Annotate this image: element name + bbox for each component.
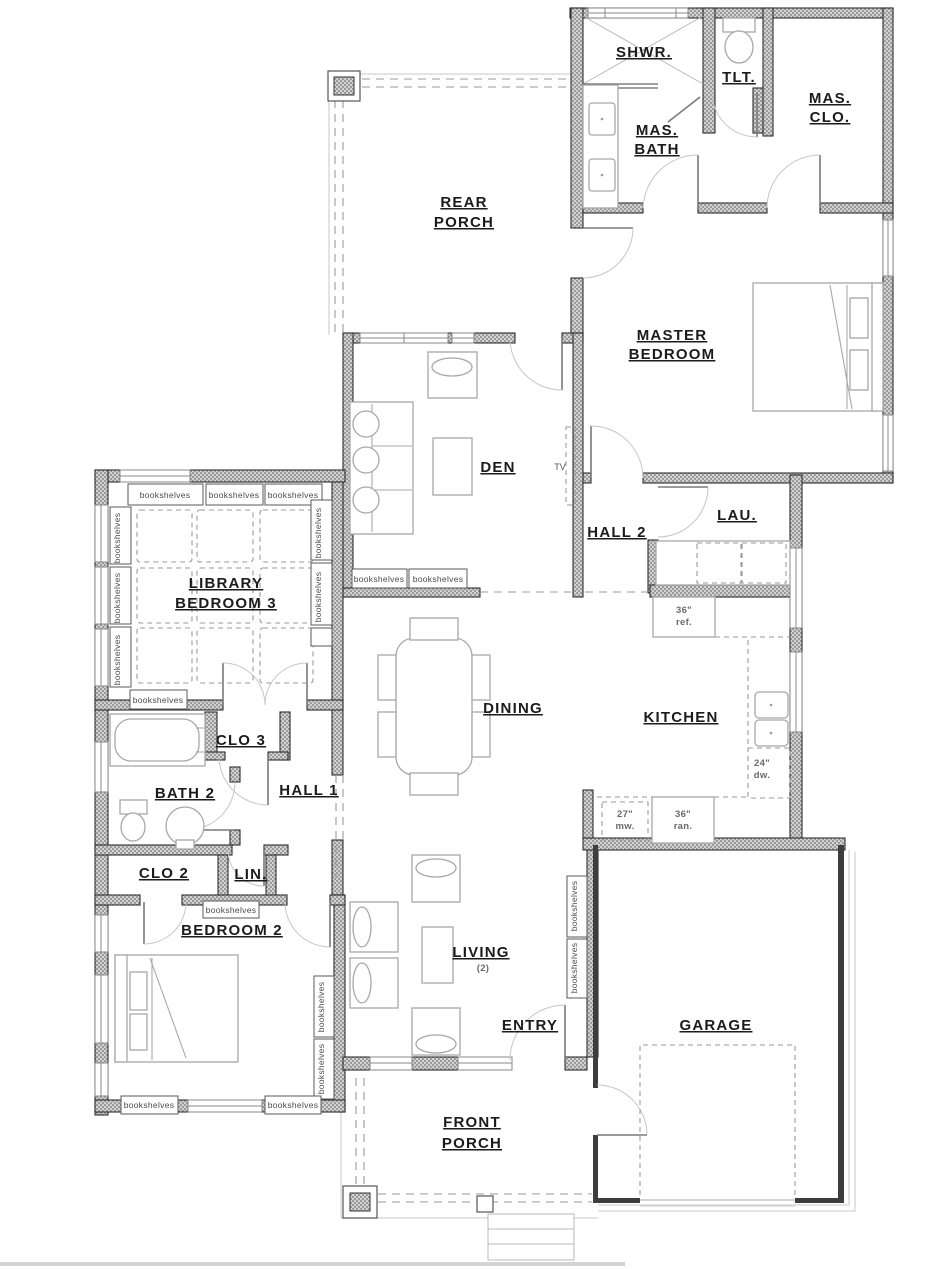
- bookshelves-label: bookshelves: [413, 574, 464, 584]
- label-dining: DINING: [483, 700, 543, 717]
- dining-table-icon: [396, 638, 472, 775]
- label-mw: mw.: [615, 821, 634, 832]
- toilet-tank-icon: [120, 800, 147, 814]
- label-bath-2: BATH 2: [155, 785, 215, 802]
- label-rear-porch-1: REAR: [440, 194, 487, 211]
- bookshelves-label: bookshelves: [268, 490, 319, 500]
- floor-plan-sheet: SHWR. TLT. MAS. CLO. MAS. BATH REAR PORC…: [0, 0, 950, 1269]
- toilet-icon: [725, 31, 753, 63]
- rear-porch-column: [328, 71, 360, 101]
- label-dw: dw.: [754, 770, 770, 781]
- label-front-porch-1: FRONT: [443, 1114, 501, 1131]
- toilet-room-fixtures: [723, 18, 755, 63]
- dining-furniture: [378, 618, 490, 795]
- label-living: LIVING: [452, 944, 509, 961]
- front-steps: [488, 1214, 574, 1260]
- label-mas-clo-1: MAS.: [809, 90, 851, 107]
- bookshelves-label: bookshelves: [316, 982, 326, 1033]
- label-entry: ENTRY: [502, 1017, 558, 1034]
- label-mas-bath-2: BATH: [634, 141, 679, 158]
- porch-post: [477, 1196, 493, 1212]
- label-ref: ref.: [676, 617, 692, 628]
- laundry-appliances: [656, 541, 790, 585]
- label-living-count: (2): [477, 963, 490, 974]
- headboard: [115, 955, 127, 1062]
- bookshelves-label: bookshelves: [569, 943, 579, 994]
- label-rear-porch-2: PORCH: [434, 214, 494, 231]
- bookshelves-label: bookshelves: [206, 905, 257, 915]
- laundry-counter: [656, 541, 790, 585]
- bath2-fixtures: [110, 714, 205, 849]
- label-mas-clo-2: CLO.: [810, 109, 851, 126]
- chair-icon: [472, 655, 490, 700]
- headboard: [872, 283, 883, 411]
- chair-icon: [410, 618, 458, 640]
- label-lau: LAU.: [717, 507, 757, 524]
- garage-car-space: [640, 1045, 795, 1195]
- label-front-porch-2: PORCH: [442, 1135, 502, 1152]
- label-ran-size: 36": [675, 809, 691, 820]
- range-icon: [652, 797, 714, 843]
- pillow-icon: [850, 350, 868, 390]
- label-kitchen: KITCHEN: [643, 709, 718, 726]
- label-hall-1: HALL 1: [279, 782, 338, 799]
- chair-icon: [472, 712, 490, 757]
- bookshelves-label: bookshelves: [112, 635, 122, 686]
- label-ref-size: 36": [676, 605, 692, 616]
- bookshelves-label: bookshelves: [133, 695, 184, 705]
- bookshelves-label: bookshelves: [124, 1100, 175, 1110]
- pillow-icon: [353, 447, 379, 473]
- label-master-bedroom-2: BEDROOM: [629, 346, 716, 363]
- bookshelves-label: bookshelves: [313, 508, 323, 559]
- toilet-tank-icon: [723, 18, 755, 32]
- label-hall-2: HALL 2: [587, 524, 646, 541]
- den-furniture: [350, 352, 575, 534]
- living-furniture: [350, 855, 460, 1055]
- pillow-icon: [353, 411, 379, 437]
- label-mw-size: 27": [617, 809, 633, 820]
- toilet-icon: [121, 813, 145, 841]
- doors: [144, 92, 820, 1135]
- bookshelves-label: bookshelves: [209, 490, 260, 500]
- floor-plan-drawing: SHWR. TLT. MAS. CLO. MAS. BATH REAR PORC…: [0, 0, 950, 1269]
- label-den: DEN: [480, 459, 515, 476]
- pillow-icon: [130, 972, 147, 1010]
- label-tv: TV: [554, 462, 566, 472]
- label-master-bedroom-1: MASTER: [637, 327, 708, 344]
- coffee-table-icon: [433, 438, 472, 495]
- bookshelves-label: bookshelves: [112, 513, 122, 564]
- pillow-icon: [850, 298, 868, 338]
- label-clo-2: CLO 2: [139, 865, 189, 882]
- label-clo-3: CLO 3: [216, 732, 266, 749]
- pedestal-sink-icon: [166, 807, 204, 845]
- bookshelves-label: bookshelves: [268, 1100, 319, 1110]
- label-tlt: TLT.: [722, 69, 756, 86]
- master-bed: [753, 283, 883, 411]
- chair-icon: [378, 655, 396, 700]
- pillow-icon: [353, 487, 379, 513]
- label-library-1: LIBRARY: [189, 575, 264, 592]
- label-mas-bath-1: MAS.: [636, 122, 678, 139]
- bookshelves-label: bookshelves: [140, 490, 191, 500]
- label-garage: GARAGE: [679, 1017, 752, 1034]
- bookshelves-label: bookshelves: [354, 574, 405, 584]
- label-dw-size: 24": [754, 758, 770, 769]
- bookshelves-label: bookshelves: [112, 573, 122, 624]
- label-lin: LIN.: [234, 866, 267, 883]
- label-library-2: BEDROOM 3: [175, 595, 277, 612]
- chair-icon: [410, 773, 458, 795]
- bedroom2-bed: [115, 955, 238, 1062]
- side-table-icon: [422, 927, 453, 983]
- front-porch-column: [343, 1186, 493, 1218]
- label-bedroom-2: BEDROOM 2: [181, 922, 283, 939]
- label-ran: ran.: [674, 821, 693, 832]
- pillow-icon: [130, 1014, 147, 1050]
- bookshelves-label: bookshelves: [313, 572, 323, 623]
- label-shwr: SHWR.: [616, 44, 672, 61]
- bookshelves-label: bookshelves: [316, 1044, 326, 1095]
- bookshelves-label: bookshelves: [569, 881, 579, 932]
- chair-icon: [378, 712, 396, 757]
